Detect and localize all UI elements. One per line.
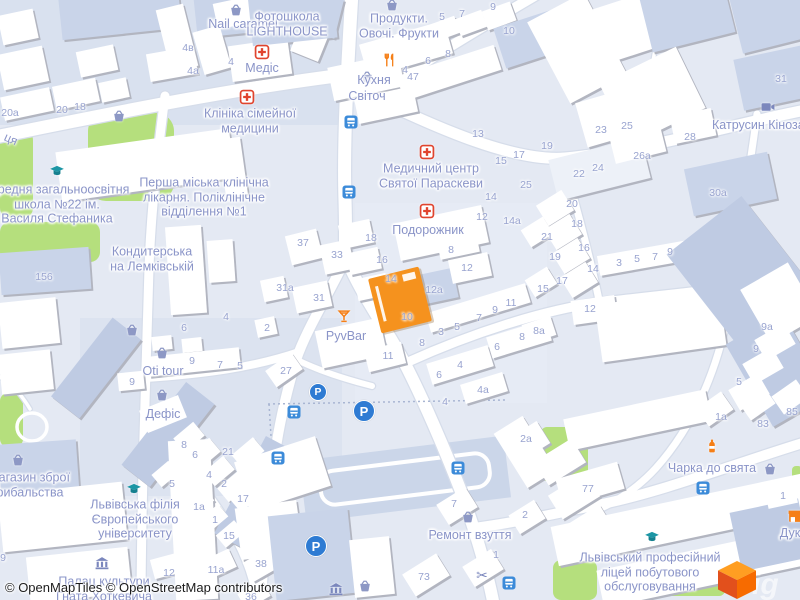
cap-icon[interactable] [645,530,660,545]
basket-icon[interactable] [155,388,170,403]
basket-icon[interactable] [11,453,26,468]
bus-stop-icon[interactable] [345,116,358,129]
parking-icon[interactable]: P [353,400,375,422]
scissors-icon[interactable]: ✂ [475,568,490,583]
bus-stop-icon[interactable] [272,452,285,465]
cross-icon[interactable] [420,204,435,219]
museum-icon[interactable] [329,582,344,597]
cross-icon[interactable] [420,145,435,160]
basket-icon[interactable] [360,70,375,85]
cross-icon[interactable] [255,45,270,60]
basket-icon[interactable] [358,579,373,594]
bus-stop-icon[interactable] [452,462,465,475]
map-view: ✂PPPNail caramelФотошкола LIGHTHOUSEПрод… [0,0,800,600]
cross-icon[interactable] [240,90,255,105]
shop-icon[interactable] [788,509,800,524]
basket-icon[interactable] [112,109,127,124]
bottle-icon[interactable] [705,439,720,454]
svg-text:✂: ✂ [476,568,488,583]
cocktail-icon[interactable] [337,309,352,324]
maptiler-logo[interactable] [714,558,760,600]
camera-icon[interactable] [761,100,776,115]
basket-icon[interactable] [229,3,244,18]
bus-stop-icon[interactable] [288,406,301,419]
bus-stop-icon[interactable] [503,577,516,590]
museum-icon[interactable] [95,556,110,571]
parking-icon[interactable]: P [305,535,327,557]
basket-icon[interactable] [125,323,140,338]
restaurant-icon[interactable] [383,53,398,68]
basket-icon[interactable] [155,346,170,361]
cap-icon[interactable] [50,164,65,179]
basket-icon[interactable] [461,510,476,525]
parking-icon[interactable]: P [309,383,327,401]
attribution[interactable]: © OpenMapTiles © OpenStreetMap contribut… [5,580,282,595]
bus-stop-icon[interactable] [697,482,710,495]
basket-icon[interactable] [763,462,778,477]
basket-icon[interactable] [385,0,400,13]
cap-icon[interactable] [127,482,142,497]
bus-stop-icon[interactable] [343,186,356,199]
